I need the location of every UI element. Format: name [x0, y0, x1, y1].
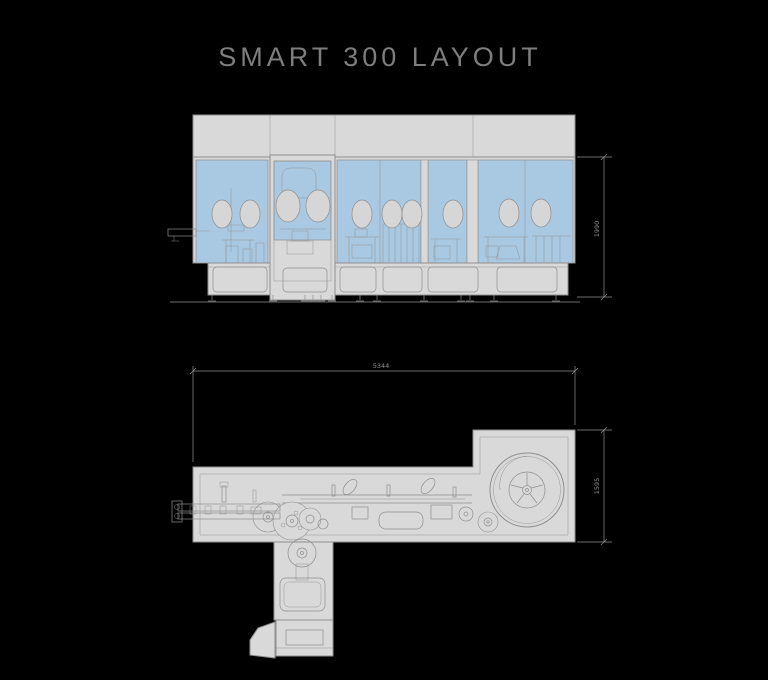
plenum-band [193, 115, 575, 157]
glove-port [443, 200, 463, 228]
turntable [490, 453, 564, 527]
dimension-length-label: 5344 [373, 362, 390, 370]
front-elevation-view: 1990 [168, 115, 612, 302]
dimension-height: 1990 [577, 154, 612, 300]
machine-layout-drawing: SMART 300 LAYOUT [0, 0, 768, 680]
dimension-depth-label: 1595 [593, 478, 601, 495]
central-isolator-module [270, 155, 335, 300]
transfer-wheel [478, 512, 498, 532]
plan-view: 5344 1595 [172, 362, 612, 658]
glove-port [382, 200, 402, 228]
glove-port [240, 200, 260, 228]
glove-port [352, 200, 372, 228]
lower-section [250, 539, 333, 658]
dimension-depth: 1595 [577, 427, 612, 545]
machine-feet [208, 295, 560, 301]
glove-port [499, 199, 519, 227]
glove-port [531, 199, 551, 227]
glove-port [402, 200, 422, 228]
drawing-canvas: SMART 300 LAYOUT [0, 0, 768, 680]
glove-port [276, 190, 300, 222]
glove-port [306, 190, 330, 222]
glove-port [212, 200, 232, 228]
machine-base [208, 263, 568, 295]
page-title: SMART 300 LAYOUT [218, 42, 542, 72]
dimension-height-label: 1990 [593, 221, 601, 238]
